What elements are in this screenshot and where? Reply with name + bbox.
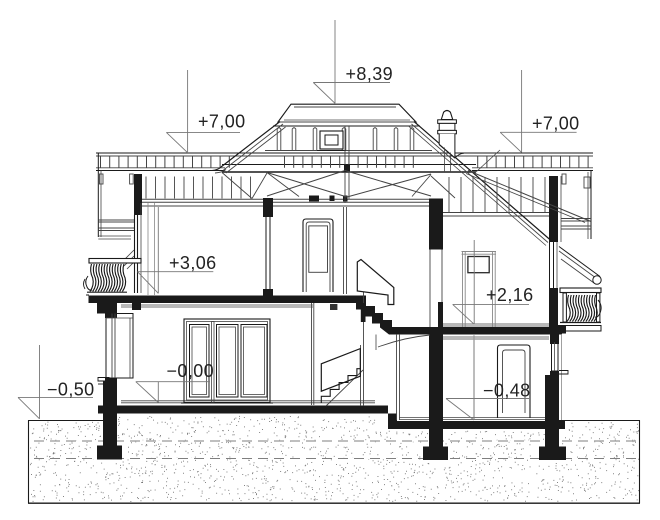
- svg-text:+7,00: +7,00: [532, 114, 580, 134]
- svg-text:+8,39: +8,39: [346, 64, 394, 84]
- svg-text:−0,48: −0,48: [483, 381, 531, 401]
- svg-text:+7,00: +7,00: [198, 112, 246, 132]
- svg-text:−0,50: −0,50: [47, 379, 95, 399]
- svg-text:+2,16: +2,16: [486, 285, 534, 305]
- svg-text:−0,00: −0,00: [167, 361, 215, 381]
- svg-text:+3,06: +3,06: [169, 253, 217, 273]
